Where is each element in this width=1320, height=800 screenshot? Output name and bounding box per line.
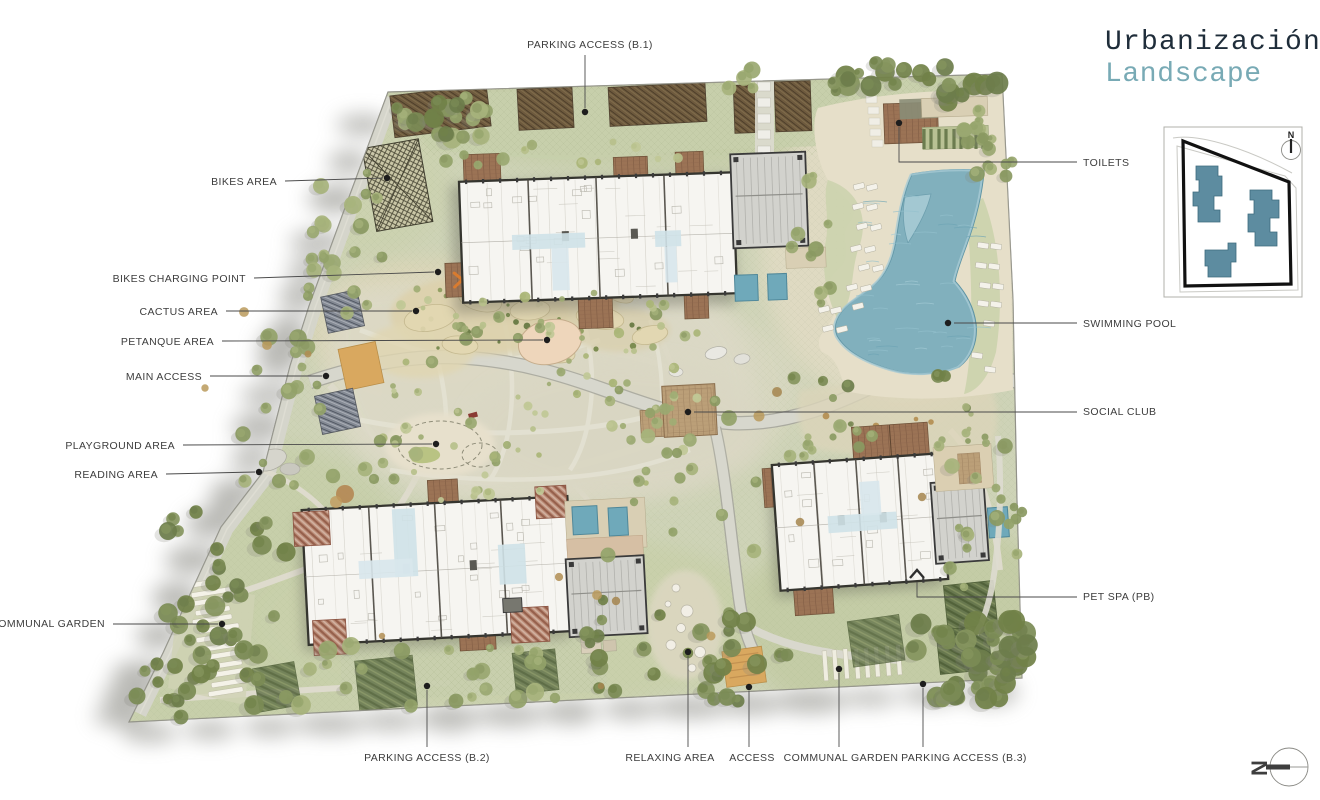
svg-text:N: N	[1247, 760, 1272, 776]
svg-text:Urbanización: Urbanización	[1105, 27, 1320, 58]
svg-text:MAIN ACCESS: MAIN ACCESS	[126, 371, 202, 383]
svg-text:COMMUNAL GARDEN: COMMUNAL GARDEN	[0, 618, 105, 630]
svg-text:BIKES AREA: BIKES AREA	[211, 176, 277, 188]
svg-text:READING AREA: READING AREA	[74, 469, 158, 481]
svg-text:COMMUNAL GARDEN: COMMUNAL GARDEN	[784, 752, 899, 764]
svg-text:SWIMMING POOL: SWIMMING POOL	[1083, 318, 1176, 330]
svg-text:PARKING ACCESS (B.2): PARKING ACCESS (B.2)	[364, 752, 490, 764]
svg-text:PET SPA (PB): PET SPA (PB)	[1083, 591, 1155, 603]
svg-text:BIKES CHARGING POINT: BIKES CHARGING POINT	[113, 273, 247, 285]
svg-text:RELAXING AREA: RELAXING AREA	[625, 752, 714, 764]
svg-text:TOILETS: TOILETS	[1083, 157, 1129, 169]
svg-text:N: N	[1288, 130, 1295, 140]
svg-text:CACTUS AREA: CACTUS AREA	[140, 306, 219, 318]
svg-text:PARKING ACCESS (B.3): PARKING ACCESS (B.3)	[901, 752, 1027, 764]
svg-text:PETANQUE AREA: PETANQUE AREA	[121, 336, 214, 348]
svg-text:PLAYGROUND AREA: PLAYGROUND AREA	[65, 440, 175, 452]
svg-text:Landscape: Landscape	[1105, 59, 1262, 90]
svg-text:ACCESS: ACCESS	[729, 752, 775, 764]
svg-text:SOCIAL CLUB: SOCIAL CLUB	[1083, 406, 1156, 418]
svg-text:PARKING ACCESS (B.1): PARKING ACCESS (B.1)	[527, 39, 653, 51]
